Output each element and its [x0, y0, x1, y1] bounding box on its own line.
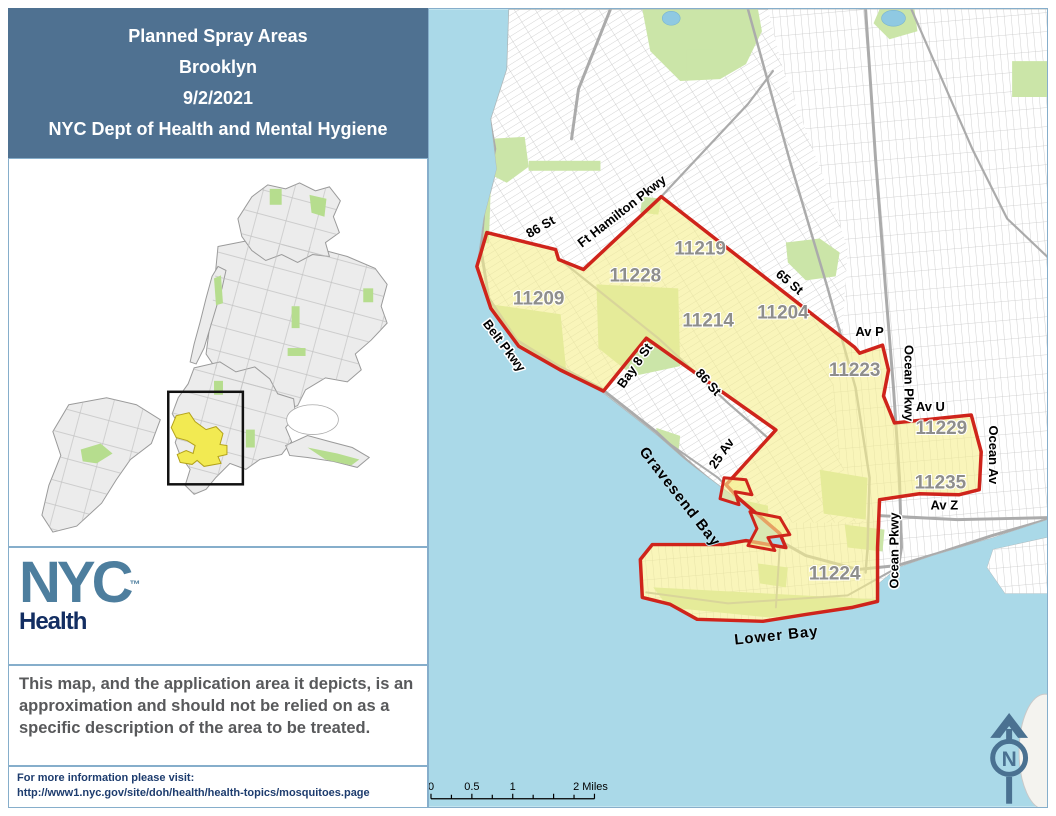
footer-info-label: For more information please visit:	[17, 771, 419, 786]
street-label: Ocean Pkwy	[886, 512, 901, 589]
zip-code-label: 11214	[682, 310, 734, 331]
brooklyn-spray-map: 1121911228112091121411204112231122911235…	[429, 9, 1047, 807]
trademark-symbol: ™	[129, 579, 140, 591]
disclaimer-text: This map, and the application area it de…	[19, 675, 413, 737]
zip-code-label: 11209	[513, 288, 565, 309]
scale-bar-label: 1	[510, 781, 516, 793]
street-label: Ocean Pkwy	[901, 345, 916, 422]
jamaica-bay	[287, 405, 339, 435]
scale-bar-label: 0.5	[464, 781, 479, 793]
title-line-2: Brooklyn	[8, 52, 428, 83]
map-panel: 1121911228112091121411204112231122911235…	[428, 8, 1048, 808]
zip-code-label: 11229	[916, 418, 968, 439]
disclaimer-panel: This map, and the application area it de…	[8, 665, 428, 766]
scale-bar-label: 2 Miles	[573, 781, 608, 793]
nyc-logo: NYC™	[19, 554, 140, 612]
street-label: Av P	[855, 324, 884, 339]
title-line-4: NYC Dept of Health and Mental Hygiene	[8, 114, 428, 145]
street-label: Av Z	[931, 498, 959, 513]
street-label: Ocean Av	[986, 425, 1001, 485]
street-label: Av U	[916, 399, 945, 414]
inset-locator-panel	[8, 158, 428, 547]
inset-nyc-map	[9, 159, 427, 546]
title-line-3: 9/2/2021	[8, 83, 428, 114]
zip-code-label: 11219	[674, 238, 726, 259]
page: { "title_block": { "lines": ["Planned Sp…	[0, 0, 1056, 816]
zip-code-label: 11223	[829, 360, 881, 381]
footer-panel: For more information please visit: http:…	[8, 766, 428, 808]
north-label: N	[1002, 748, 1017, 771]
zip-code-label: 11204	[757, 302, 809, 323]
title-line-1: Planned Spray Areas	[8, 21, 428, 52]
footer-url: http://www1.nyc.gov/site/doh/health/heal…	[17, 786, 419, 801]
scale-bar-label: 0	[429, 781, 434, 793]
title-block: Planned Spray Areas Brooklyn 9/2/2021 NY…	[8, 8, 428, 158]
zip-code-label: 11224	[809, 563, 861, 584]
zip-code-label: 11235	[915, 473, 967, 494]
zip-code-label: 11228	[610, 265, 662, 286]
logo-panel: NYC™ Health	[8, 547, 428, 665]
